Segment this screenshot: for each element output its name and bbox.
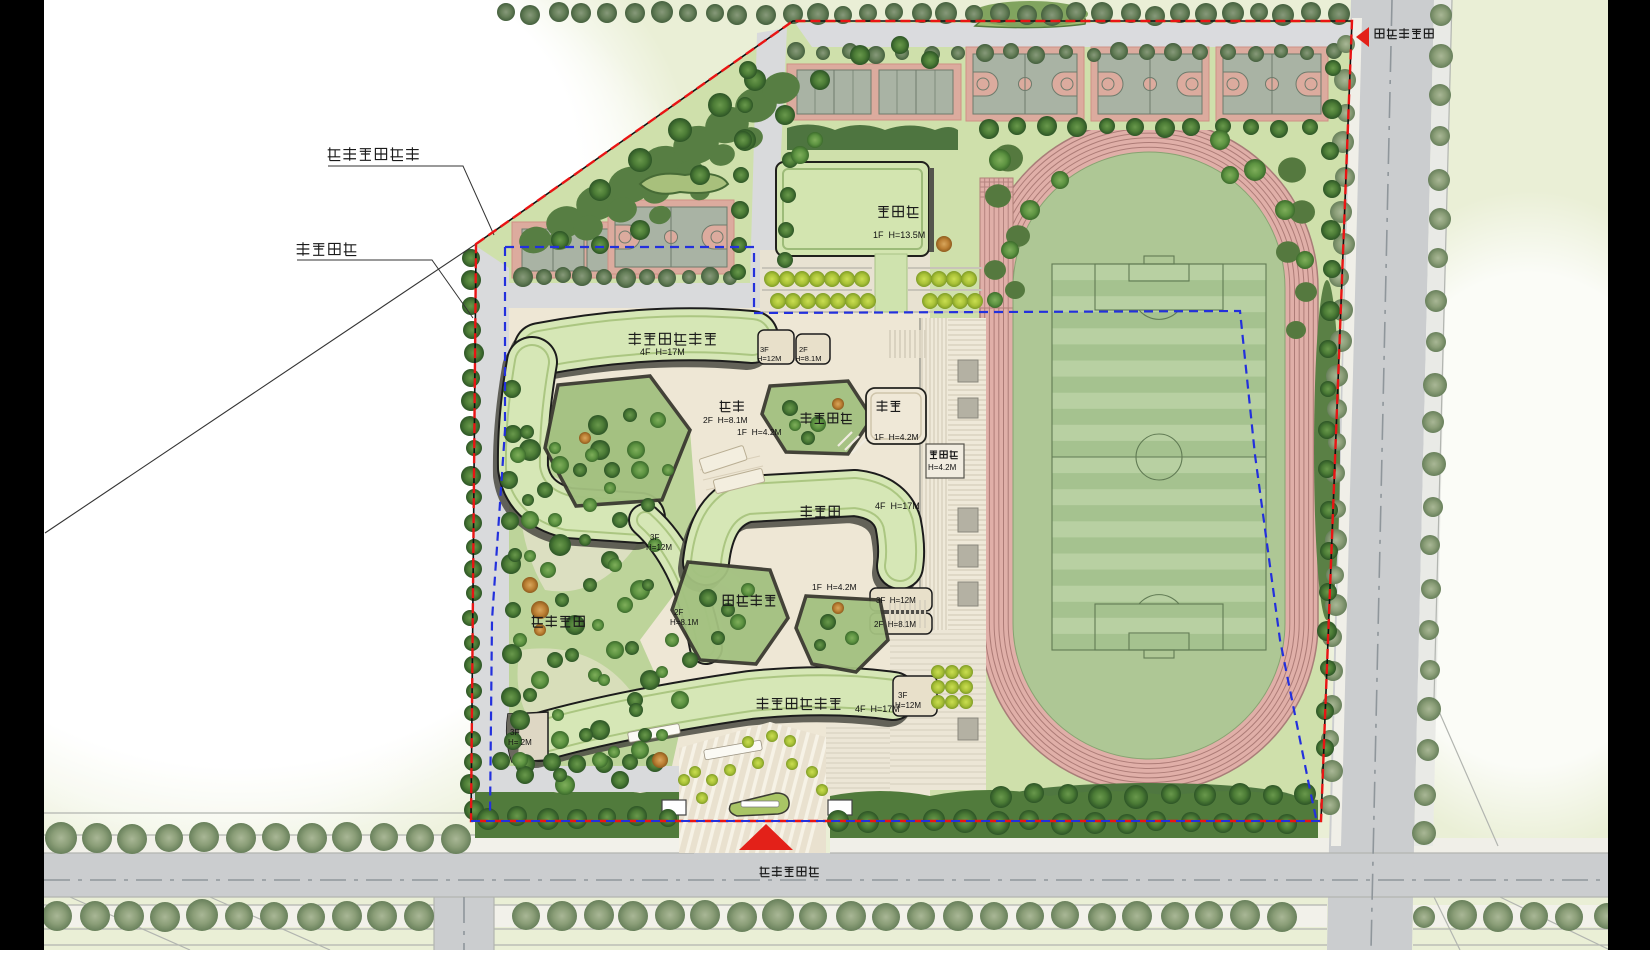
svg-text:4F H=17M: 4F H=17M: [855, 704, 900, 714]
svg-text:3F: 3F: [760, 345, 769, 354]
svg-text:1F H=13.5M: 1F H=13.5M: [873, 230, 925, 240]
svg-text:4F H=17M: 4F H=17M: [875, 501, 920, 511]
svg-text:H=8.1M: H=8.1M: [795, 354, 821, 363]
svg-text:H=12M: H=12M: [646, 543, 672, 552]
svg-text:1F H=4.2M: 1F H=4.2M: [874, 432, 919, 442]
svg-text:4F H=17M: 4F H=17M: [640, 347, 685, 357]
svg-text:H=12M: H=12M: [895, 701, 921, 710]
svg-text:H=12M: H=12M: [757, 354, 781, 363]
svg-text:H=8.1M: H=8.1M: [670, 618, 699, 627]
svg-text:3F: 3F: [650, 533, 659, 542]
svg-text:2F: 2F: [674, 608, 683, 617]
svg-text:1F H=4.2M: 1F H=4.2M: [812, 582, 857, 592]
svg-text:H=4.2M: H=4.2M: [928, 463, 957, 472]
svg-text:3F H=12M: 3F H=12M: [876, 596, 916, 605]
svg-text:2F: 2F: [799, 345, 808, 354]
svg-text:3F: 3F: [510, 728, 519, 737]
svg-text:1F H=4.2M: 1F H=4.2M: [737, 427, 782, 437]
svg-text:2F H=8.1M: 2F H=8.1M: [874, 620, 916, 629]
svg-text:H= 2M: H= 2M: [508, 738, 532, 747]
svg-text:3F: 3F: [898, 691, 907, 700]
svg-text:2F H=8.1M: 2F H=8.1M: [703, 415, 748, 425]
